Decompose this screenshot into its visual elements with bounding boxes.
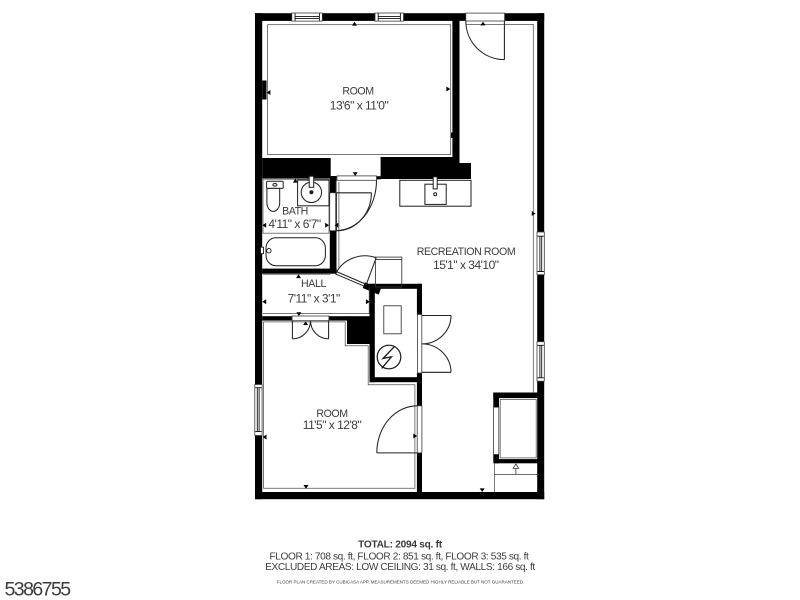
svg-text:HALL: HALL <box>301 278 326 290</box>
svg-text:5386755: 5386755 <box>5 578 72 600</box>
svg-text:ROOM: ROOM <box>342 86 373 98</box>
svg-text:11'5" x 12'8": 11'5" x 12'8" <box>303 418 362 432</box>
svg-text:FLOOR 1: 708 sq. ft, FLOOR 2:: FLOOR 1: 708 sq. ft, FLOOR 2: 851 sq. ft… <box>269 551 529 562</box>
svg-text:BATH: BATH <box>282 205 308 217</box>
svg-text:4'11" x 6'7": 4'11" x 6'7" <box>268 217 320 231</box>
svg-text:RECREATION ROOM: RECREATION ROOM <box>417 246 516 258</box>
svg-text:FLOOR PLAN CREATED BY CUBICASA: FLOOR PLAN CREATED BY CUBICASA APP. MEAS… <box>277 579 524 584</box>
svg-text:7'11" x 3'1": 7'11" x 3'1" <box>288 292 340 306</box>
svg-text:13'6" x 11'0": 13'6" x 11'0" <box>330 98 389 112</box>
svg-text:TOTAL: 2094 sq. ft: TOTAL: 2094 sq. ft <box>358 539 443 550</box>
svg-text:EXCLUDED AREAS: LOW CEILING: 3: EXCLUDED AREAS: LOW CEILING: 31 sq. ft, … <box>265 562 535 573</box>
svg-text:15'1" x 34'10": 15'1" x 34'10" <box>433 258 499 272</box>
